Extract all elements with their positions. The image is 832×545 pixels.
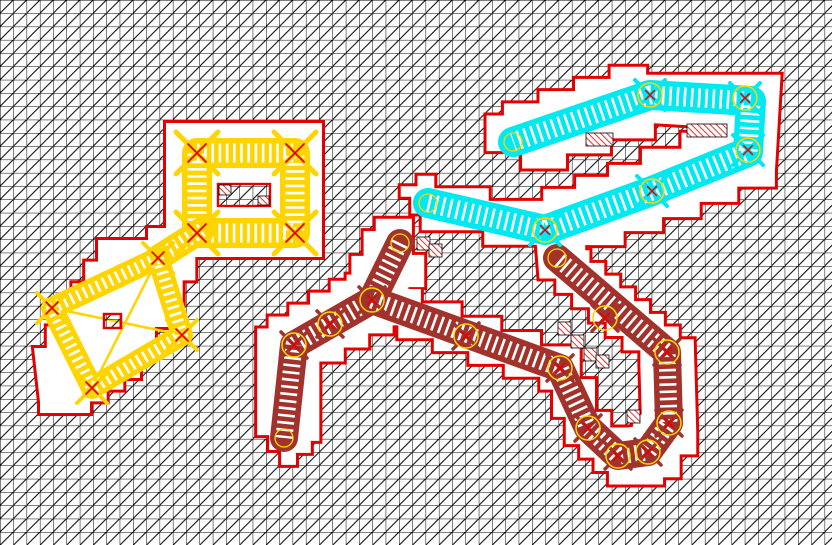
refined-cell	[687, 124, 727, 137]
mesh-canvas	[0, 0, 832, 545]
refined-cell	[219, 185, 231, 195]
grid-island	[104, 314, 121, 328]
refined-cell	[596, 355, 609, 368]
mesh-viewport	[0, 0, 832, 545]
refined-cell	[429, 244, 442, 257]
refined-cell	[586, 133, 613, 146]
refined-cell	[258, 196, 269, 205]
refined-cell	[627, 410, 640, 423]
refined-cell	[571, 335, 584, 348]
refined-cell	[558, 322, 571, 335]
refined-cell	[584, 348, 597, 361]
refined-cell	[417, 237, 430, 250]
